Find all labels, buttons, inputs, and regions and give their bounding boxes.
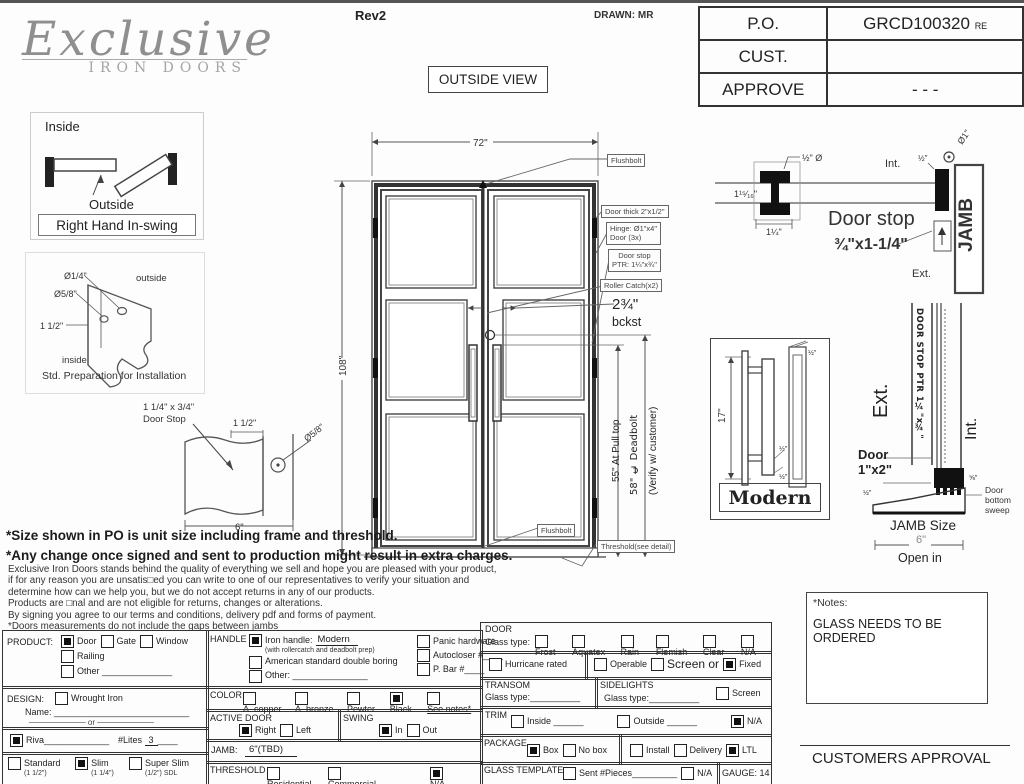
checkbox-inside[interactable]: Inside ______ bbox=[511, 715, 584, 728]
hurricane-options: Hurricane rated bbox=[487, 657, 569, 676]
svg-text:1 1/2": 1 1/2" bbox=[233, 418, 256, 428]
checkbox-box[interactable]: Box bbox=[527, 744, 559, 757]
checkbox-sent-pieces[interactable]: Sent #Pieces_________ bbox=[563, 767, 677, 780]
prep-diagram: Ø1/4" outside Ø5/8" 1 1/2" inside Std. P… bbox=[25, 252, 205, 394]
checkbox-window[interactable]: Window bbox=[140, 635, 188, 648]
sill-int-label: Int. bbox=[963, 385, 981, 440]
active-door-label: ACTIVE DOOR bbox=[210, 713, 272, 723]
transom-glass-field[interactable]: Glass type:__________ bbox=[485, 692, 580, 702]
svg-text:1 1/2": 1 1/2" bbox=[40, 321, 63, 331]
checkbox-commercial[interactable]: Commercial________ bbox=[328, 767, 426, 784]
cust-value[interactable] bbox=[827, 40, 1023, 73]
lites-field[interactable]: #Lites 3____ bbox=[118, 735, 178, 745]
revision-label: Rev2 bbox=[355, 8, 386, 23]
checkbox-standard[interactable]: Standard(1 1/2") bbox=[8, 757, 71, 778]
svg-text:17": 17" bbox=[717, 408, 728, 423]
svg-text:inside: inside bbox=[62, 355, 87, 366]
svg-text:outside: outside bbox=[136, 273, 167, 284]
swing-section: SWING InOut bbox=[338, 709, 483, 742]
checkbox-out[interactable]: Out bbox=[407, 724, 438, 737]
design-label: DESIGN: bbox=[7, 694, 44, 704]
roller-catch-callout: Roller Catch(x2) bbox=[600, 279, 662, 292]
color-label: COLOR bbox=[210, 690, 242, 700]
active-door-options: RightLeft bbox=[237, 723, 313, 738]
checkbox-no-box[interactable]: No box bbox=[563, 744, 608, 757]
jamb-value[interactable]: 6"(TBD) bbox=[245, 744, 297, 757]
doorstop-callout: Door stopPTR: 1¼"x¾" bbox=[608, 249, 661, 272]
sill-drawing: ½" ⅝" bbox=[855, 295, 1024, 580]
sidelights-label: SIDELIGHTS bbox=[600, 680, 654, 690]
gauge-value: GAUGE: 14 bbox=[722, 768, 770, 778]
trim-label: TRIM bbox=[485, 710, 507, 720]
threshold-options: ResidentialCommercial________N/A ____ bbox=[265, 766, 482, 784]
design-name-field[interactable]: Name: ___________________________ bbox=[25, 707, 189, 717]
doorstop-detail: 1 1/4" x 3/4" Door Stop 1 1/2" Ø5/8" 6" bbox=[115, 398, 335, 538]
operable-section: OperableScreen orFixed bbox=[585, 651, 772, 680]
pull-height-label: 55" At Pull top bbox=[611, 352, 622, 482]
trim-options: Inside ______Outside ______N/A bbox=[509, 714, 764, 729]
checkbox-residential[interactable]: Residential bbox=[267, 767, 324, 784]
svg-text:Door stop: Door stop bbox=[828, 208, 915, 230]
shipping-section: InstallDeliveryLTL bbox=[619, 734, 772, 765]
checkbox-super-slim[interactable]: Super Slim(1/2") SDL bbox=[129, 757, 204, 778]
approval-signature-line[interactable] bbox=[800, 745, 1010, 746]
svg-text:½": ½" bbox=[779, 445, 788, 453]
glass-template-options: Sent #Pieces_________N/A bbox=[561, 766, 714, 781]
package-left-options: BoxNo box bbox=[525, 743, 609, 758]
doorstop-drawing: 1 1/4" x 3/4" Door Stop 1 1/2" Ø5/8" 6" bbox=[115, 398, 335, 538]
sidelights-section: SIDELIGHTS Glass type:__________ Screen bbox=[595, 677, 772, 709]
outside-label: Outside bbox=[89, 197, 134, 212]
checkbox-hurricane-rated[interactable]: Hurricane rated bbox=[489, 658, 567, 671]
order-drawing-sheet: Exclusive IRON DOORS Rev2 DRAWN: MR OUTS… bbox=[0, 0, 1024, 784]
door-elevation-drawing: 72" 108" bbox=[330, 118, 680, 573]
po-info-table: P.O. GRCD100320 RE CUST. APPROVE - - - bbox=[698, 6, 1024, 107]
handle-section: HANDLE Iron handle:Modern(with rollercat… bbox=[206, 630, 483, 689]
trim-section: TRIM Inside ______Outside ______N/A bbox=[480, 706, 772, 737]
checkbox-gate[interactable]: Gate bbox=[101, 635, 137, 648]
sill-ext-label: Ext. bbox=[870, 358, 893, 418]
checkbox-iron-handle[interactable]: Iron handle:Modern(with rollercatch and … bbox=[249, 634, 415, 655]
notes-body[interactable]: GLASS NEEDS TO BE ORDERED bbox=[813, 617, 981, 645]
table-row: P.O. GRCD100320 RE bbox=[699, 7, 1023, 40]
notes-box: *Notes: GLASS NEEDS TO BE ORDERED bbox=[806, 592, 988, 704]
glass-template-section: GLASS TEMPLATE Sent #Pieces_________N/A bbox=[480, 762, 720, 784]
disclaimer-fineprint: Exclusive Iron Doors stands behind the q… bbox=[8, 564, 497, 632]
svg-text:1¹⁵⁄₁₆": 1¹⁵⁄₁₆" bbox=[734, 189, 757, 199]
deadbolt-height-label: 58" ℄ Deadbolt bbox=[629, 345, 640, 495]
logo-script-text: Exclusive bbox=[22, 12, 262, 67]
prep-drawing: Ø1/4" outside Ø5/8" 1 1/2" inside Std. P… bbox=[26, 253, 204, 393]
checkbox-american-standard-double-boring[interactable]: American standard double boring bbox=[249, 656, 415, 669]
glass-type-label: Glass type: bbox=[485, 637, 530, 647]
svg-text:108": 108" bbox=[338, 355, 349, 376]
checkbox-in[interactable]: In bbox=[379, 724, 403, 737]
checkbox-slim[interactable]: Slim(1 1/4") bbox=[75, 757, 125, 778]
company-logo: Exclusive IRON DOORS bbox=[22, 12, 262, 76]
cust-label: CUST. bbox=[699, 40, 827, 73]
checkbox-n-a[interactable]: N/A ____ bbox=[430, 767, 480, 784]
svg-text:Ø1/4": Ø1/4" bbox=[64, 271, 87, 281]
package-section: PACKAGE BoxNo box bbox=[480, 734, 622, 765]
notes-title: *Notes: bbox=[813, 597, 981, 609]
table-row: CUST. bbox=[699, 40, 1023, 73]
package-right-options: InstallDeliveryLTL bbox=[628, 743, 759, 758]
jamb-label: JAMB: bbox=[211, 745, 238, 755]
product-section: PRODUCT: DoorGateWindowRailingOther ____… bbox=[2, 630, 209, 689]
svg-text:JAMB: JAMB bbox=[956, 198, 977, 252]
svg-text:1¼": 1¼" bbox=[766, 227, 782, 237]
verify-label: (Verify w/ customer) bbox=[648, 345, 659, 495]
glass-template-label: GLASS TEMPLATE bbox=[484, 765, 563, 775]
checkbox-wrought-iron[interactable]: Wrought Iron bbox=[55, 692, 123, 705]
operable-options: OperableScreen orFixed bbox=[592, 657, 763, 672]
product-label: PRODUCT: bbox=[7, 637, 53, 647]
jamb-size-value: 6" bbox=[916, 534, 926, 546]
swing-label: SWING bbox=[343, 713, 374, 723]
svg-text:1 1/4" x 3/4": 1 1/4" x 3/4" bbox=[143, 402, 194, 413]
sidelights-glass-field[interactable]: Glass type:__________ bbox=[604, 693, 699, 703]
svg-text:Ø5/8": Ø5/8" bbox=[302, 422, 326, 444]
drawn-by-label: DRAWN: MR bbox=[594, 10, 653, 21]
checkbox-operable[interactable]: Operable bbox=[594, 658, 647, 671]
checkbox-outside[interactable]: Outside ______ bbox=[617, 715, 697, 728]
checkbox-screen-or[interactable]: Screen or bbox=[651, 658, 719, 671]
po-label: P.O. bbox=[699, 7, 827, 40]
threshold-section: THRESHOLD ResidentialCommercial________N… bbox=[206, 761, 483, 784]
svg-text:Std. Preparation for Installat: Std. Preparation for Installation bbox=[42, 370, 186, 382]
checkbox-right[interactable]: Right bbox=[239, 724, 276, 737]
riva-row: Riva_____________ #Lites 3____ bbox=[2, 727, 209, 755]
package-label: PACKAGE bbox=[484, 738, 527, 748]
svg-text:Ø1": Ø1" bbox=[955, 128, 972, 146]
approve-label: APPROVE bbox=[699, 73, 827, 106]
handle-left-options: Iron handle:Modern(with rollercatch and … bbox=[247, 633, 417, 684]
sizes-row: Standard(1 1/2")Slim(1 1/4")Super Slim(1… bbox=[2, 752, 209, 784]
approve-value[interactable]: - - - bbox=[827, 73, 1023, 106]
swing-options: InOut bbox=[377, 723, 439, 738]
checkbox-screen[interactable]: Screen bbox=[716, 687, 761, 700]
checkbox-riva[interactable]: Riva_____________ bbox=[10, 734, 109, 747]
svg-text:Door Stop: Door Stop bbox=[143, 414, 186, 425]
gauge-cell: GAUGE: 14 bbox=[717, 762, 772, 784]
door-thickness-callout: Door thick 2"x1/2" bbox=[601, 205, 669, 218]
svg-text:Ø5/8": Ø5/8" bbox=[54, 289, 77, 299]
threshold-label: THRESHOLD bbox=[210, 765, 266, 775]
size-options: Standard(1 1/2")Slim(1 1/4")Super Slim(1… bbox=[6, 756, 206, 779]
threshold-callout: Threshold(see detail) bbox=[597, 540, 675, 553]
svg-text:½" Ø: ½" Ø bbox=[802, 153, 822, 163]
svg-text:Ext.: Ext. bbox=[912, 268, 931, 280]
checkbox-ltl[interactable]: LTL bbox=[726, 744, 757, 757]
svg-text:¾"x1-1/4": ¾"x1-1/4" bbox=[834, 236, 908, 253]
door-glass-section: DOOR Glass type: FrostAquatexRainFlemish… bbox=[480, 622, 772, 654]
swing-caption: Right Hand In-swing bbox=[38, 214, 196, 236]
checkbox-delivery[interactable]: Delivery bbox=[674, 744, 723, 757]
backset-dim: 2¾"bckst bbox=[612, 296, 641, 330]
svg-text:½": ½" bbox=[779, 473, 788, 481]
checkbox-n-a[interactable]: N/A bbox=[731, 715, 762, 728]
handle-detail-box: ½" ½" ½" 17" Modern bbox=[710, 338, 830, 520]
door-section-label: DOOR bbox=[485, 624, 512, 634]
handle-label: HANDLE bbox=[210, 634, 247, 644]
open-in-label: Open in bbox=[898, 551, 942, 565]
table-row: APPROVE - - - bbox=[699, 73, 1023, 106]
flushbolt-bottom-callout: Flushbolt bbox=[537, 524, 575, 537]
jamb-head-drawing: 1¹⁵⁄₁₆" 1¼" ½" Ø Int. ½" Ø1" JAMB Door s… bbox=[700, 125, 1024, 310]
sidelights-options: Screen bbox=[714, 686, 763, 705]
disclaimer-size: *Size shown in PO is unit size including… bbox=[6, 528, 398, 543]
jamb-size-label: JAMB Size bbox=[890, 518, 956, 533]
checkbox-other[interactable]: Other ______________ bbox=[61, 665, 172, 678]
po-value[interactable]: GRCD100320 RE bbox=[827, 7, 1023, 40]
svg-text:⅝": ⅝" bbox=[969, 475, 978, 482]
outside-view-label: OUTSIDE VIEW bbox=[428, 66, 548, 93]
flushbolt-top-callout: Flushbolt bbox=[607, 154, 645, 167]
door-bottom-sweep-label: Doorbottomsweep bbox=[985, 485, 1011, 516]
svg-text:½": ½" bbox=[863, 489, 872, 497]
active-door-section: ACTIVE DOOR RightLeft bbox=[206, 709, 341, 742]
checkbox-n-a[interactable]: N/A bbox=[681, 767, 712, 780]
transom-section: TRANSOM Glass type:__________ bbox=[480, 677, 598, 709]
checkbox-door[interactable]: Door bbox=[61, 635, 97, 648]
design-section: DESIGN: Wrought Iron Name: _____________… bbox=[2, 686, 209, 730]
checkbox-left[interactable]: Left bbox=[280, 724, 311, 737]
hurricane-section: Hurricane rated bbox=[480, 651, 588, 680]
checkbox-install[interactable]: Install bbox=[630, 744, 670, 757]
swing-diagram: Inside Outside Right Hand In-swing bbox=[30, 112, 204, 240]
transom-label: TRANSOM bbox=[485, 680, 530, 690]
svg-text:½": ½" bbox=[808, 349, 817, 357]
svg-text:Int.: Int. bbox=[885, 158, 900, 170]
sill-door-size: Door1"x2" bbox=[858, 448, 892, 478]
svg-text:½": ½" bbox=[918, 154, 928, 163]
product-options: DoorGateWindowRailingOther _____________… bbox=[59, 634, 207, 679]
svg-text:72": 72" bbox=[473, 138, 488, 149]
disclaimer-charges: *Any change once signed and sent to prod… bbox=[6, 548, 512, 563]
sill-doorstop-label: DOOR STOP PTR 1¼"x¾" bbox=[914, 308, 924, 468]
hinge-callout: Hinge: Ø1"x4"Door (3x) bbox=[606, 222, 661, 245]
checkbox-railing[interactable]: Railing bbox=[61, 650, 105, 663]
approval-label: CUSTOMERS APPROVAL bbox=[812, 750, 991, 767]
checkbox-other[interactable]: Other: _______________ bbox=[249, 670, 415, 683]
checkbox-fixed[interactable]: Fixed bbox=[723, 658, 761, 671]
handle-style-caption: Modern bbox=[719, 483, 821, 512]
design-or-divider: ────────── or ────────── bbox=[29, 718, 154, 727]
